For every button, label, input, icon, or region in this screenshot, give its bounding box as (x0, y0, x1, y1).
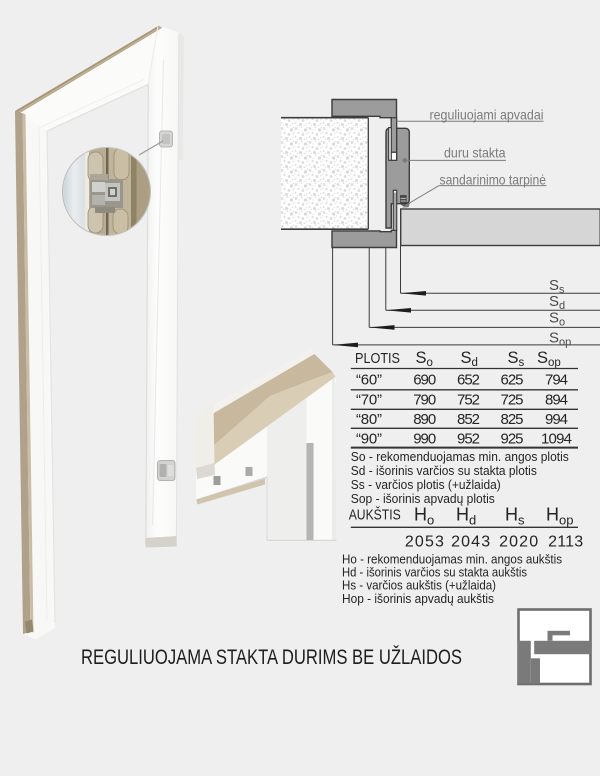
svg-text:2043: 2043 (451, 534, 490, 551)
svg-text:Hop - išorinis apvadų aukštis: Hop - išorinis apvadų aukštis (342, 591, 494, 606)
svg-text:890: 890 (413, 411, 436, 428)
svg-text:690: 690 (413, 372, 436, 389)
svg-text:725: 725 (501, 392, 524, 409)
svg-text:reguliuojami apvadai: reguliuojami apvadai (430, 107, 544, 123)
svg-text:So - rekomenduojamas min. ango: So - rekomenduojamas min. angos plotis (351, 449, 569, 464)
svg-text:825: 825 (501, 411, 524, 428)
svg-text:AUKŠTIS: AUKŠTIS (349, 507, 401, 524)
svg-text:“90”: “90” (356, 431, 382, 448)
svg-text:925: 925 (501, 431, 524, 448)
svg-text:“70”: “70” (356, 392, 382, 409)
svg-text:“60”: “60” (356, 372, 382, 389)
svg-text:Ss - varčios plotis (+užlaida): Ss - varčios plotis (+užlaida) (351, 477, 501, 492)
svg-text:625: 625 (501, 372, 524, 389)
svg-text:2020: 2020 (499, 534, 538, 551)
svg-text:894: 894 (545, 392, 568, 409)
svg-text:duru stakta: duru stakta (444, 145, 506, 161)
svg-text:“80”: “80” (356, 411, 382, 428)
svg-text:994: 994 (545, 411, 568, 428)
svg-text:852: 852 (457, 411, 480, 428)
svg-text:652: 652 (457, 372, 480, 389)
svg-text:2053: 2053 (405, 534, 444, 551)
svg-text:1094: 1094 (541, 431, 572, 448)
svg-text:990: 990 (413, 431, 436, 448)
svg-text:790: 790 (413, 392, 436, 409)
svg-text:Sd - išorinis varčios su stakt: Sd - išorinis varčios su stakta plotis (351, 463, 537, 478)
svg-text:PLOTIS: PLOTIS (355, 350, 400, 367)
svg-text:REGULIUOJAMA STAKTA DURIMS BE: REGULIUOJAMA STAKTA DURIMS BE UŽLAIDOS (81, 646, 462, 669)
svg-text:752: 752 (457, 392, 480, 409)
svg-text:794: 794 (545, 372, 568, 389)
svg-text:2113: 2113 (548, 534, 583, 551)
svg-text:952: 952 (457, 431, 480, 448)
